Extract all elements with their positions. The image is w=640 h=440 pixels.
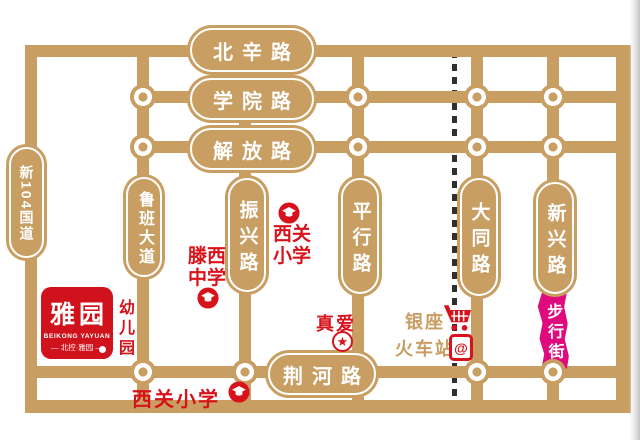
- star-icon: ★: [332, 331, 353, 352]
- road-label-zhenxing: 振兴路: [228, 178, 266, 292]
- road-label-pingxing: 平行路: [341, 178, 379, 294]
- road-label-text: 荆河路: [283, 360, 370, 389]
- project-logo: 雅园 BEIKONG YAYUAN — 北控·雅园 —: [41, 287, 113, 359]
- road-south: [25, 400, 631, 413]
- road-label-text: 大同路: [466, 202, 493, 280]
- road-label-text: 解放路: [213, 135, 300, 164]
- shopping-cart-icon: [441, 303, 473, 337]
- junction-node: [130, 84, 156, 110]
- junction-node: [345, 134, 371, 160]
- junction-node: [130, 134, 156, 160]
- road-label-jiefang: 解放路: [190, 128, 314, 170]
- train-station-icon: @: [449, 334, 473, 361]
- road-beixin: [25, 45, 631, 57]
- page-edge-shading: [629, 0, 640, 440]
- logo-title: 雅园: [45, 295, 113, 331]
- road-label-datong: 大同路: [460, 178, 498, 296]
- road-label-jinghe: 荆河路: [268, 353, 376, 395]
- junction-node: [464, 134, 490, 160]
- poi-xiguan-primary-north: 西关小学: [270, 224, 314, 268]
- poi-kindergarten: 幼儿园: [112, 299, 136, 365]
- poi-tengxi-middle: 滕西中学: [185, 246, 229, 290]
- road-label-xinxing: 新兴路: [536, 182, 574, 294]
- road-label-text: 鲁班大道: [132, 191, 156, 267]
- poi-xiguan-primary-south: 西关小学: [132, 383, 220, 412]
- poi-yinzuo: 银座: [405, 308, 445, 334]
- logo-subtitle: BEIKONG YAYUAN: [41, 333, 113, 340]
- junction-node: [464, 359, 490, 385]
- road-label-text: 振兴路: [234, 200, 261, 278]
- road-label-beixin: 北辛路: [190, 28, 314, 72]
- junction-node: [540, 134, 566, 160]
- road-label-text: 北辛路: [213, 36, 300, 65]
- road-label-text: 新104国道: [17, 165, 37, 242]
- location-map: 步行街 北辛路 学院路 解放路 荆河路 新104国道 鲁班大道 振兴路 平行路 …: [0, 0, 640, 440]
- junction-node: [540, 84, 566, 110]
- school-icon: [228, 381, 250, 408]
- junction-node: [540, 359, 566, 385]
- junction-node: [464, 84, 490, 110]
- junction-node: [345, 84, 371, 110]
- school-icon: [197, 287, 219, 314]
- logo-dot: [99, 346, 106, 353]
- road-label-text: 平行路: [347, 201, 374, 279]
- road-label-luban: 鲁班大道: [126, 177, 162, 277]
- pedestrian-street-label: 步行街: [540, 302, 566, 363]
- road-label-text: 学院路: [213, 85, 300, 114]
- road-label-text: 新兴路: [542, 203, 569, 281]
- road-label-xueyuan: 学院路: [190, 78, 314, 120]
- pedestrian-street-banner: 步行街: [537, 291, 570, 369]
- road-label-g104: 新104国道: [9, 147, 44, 258]
- poi-railway-station: 火车站: [395, 335, 455, 361]
